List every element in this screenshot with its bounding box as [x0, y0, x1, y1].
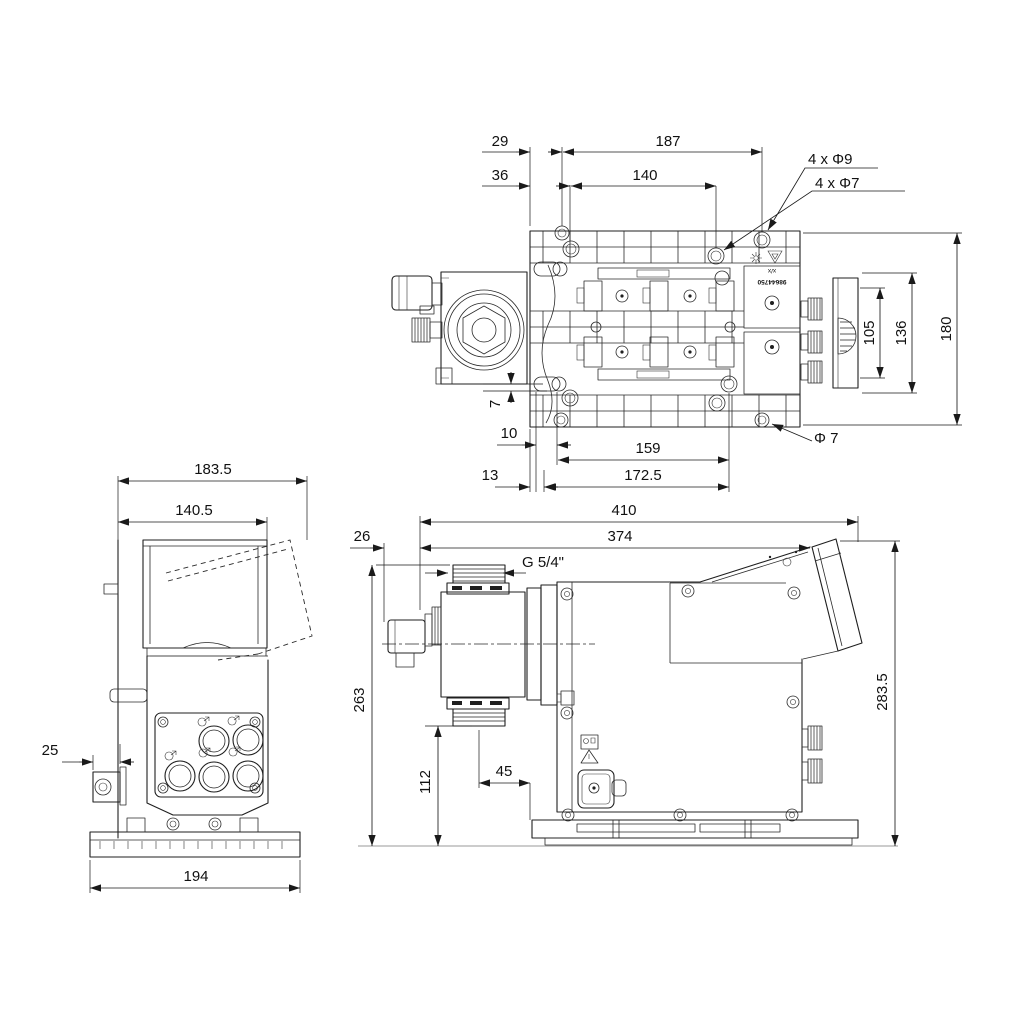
control-panel-front [143, 540, 267, 656]
dim-label-159: 159 [635, 440, 660, 457]
dim-label-410: 410 [611, 502, 636, 519]
warning-triangle-icon [768, 251, 782, 263]
dosing-pump-dimensional-drawing: x/x 98644750 [0, 0, 1024, 1024]
rear-glands-top [801, 298, 822, 383]
dim-label-13: 13 [482, 467, 499, 484]
pump-head-top [392, 272, 527, 384]
dim-label-112: 112 [417, 770, 434, 794]
control-panel-side [700, 539, 862, 659]
drain-plug [578, 770, 626, 808]
upper-slot-assembly [577, 268, 734, 311]
panel-open-position-outline [166, 540, 312, 660]
impeller-icon [750, 252, 762, 264]
part-number-label: x/x 98644750 [744, 266, 800, 394]
dim-label-180: 180 [938, 316, 955, 341]
dim-label-263: 263 [351, 687, 368, 712]
dim-label-140_5: 140.5 [175, 502, 213, 519]
thread-size-label: G 5/4" [522, 554, 564, 571]
dim-label-29: 29 [492, 133, 509, 150]
callout-phi7: Φ 7 [814, 430, 838, 447]
side-view: 410 26 374 G 5/4" [350, 502, 900, 846]
top-view: x/x 98644750 [392, 133, 962, 492]
dim-label-7: 7 [487, 400, 504, 408]
orientation-label: x/x [767, 267, 776, 274]
base-plate-side [532, 812, 858, 845]
bleed-knob-icon [412, 318, 442, 342]
wall-bracket [93, 767, 126, 805]
housing-screws [561, 585, 800, 821]
dim-label-172_5: 172.5 [624, 467, 662, 484]
dim-label-36: 36 [492, 167, 509, 184]
mounting-plate: x/x 98644750 [530, 226, 800, 427]
engineering-drawing-page: x/x 98644750 [0, 0, 1024, 1024]
lower-slot-assembly [577, 337, 734, 380]
dim-label-187: 187 [655, 133, 680, 150]
pump-body-front [104, 540, 268, 838]
rear-glands-side [802, 726, 822, 783]
warning-triangle-icon [581, 750, 598, 763]
control-panel-top-edge [833, 278, 858, 388]
dim-label-194: 194 [183, 868, 208, 885]
dim-label-136: 136 [893, 320, 910, 345]
cable-gland-icon [392, 276, 442, 314]
dim-label-25: 25 [42, 742, 59, 759]
dim-label-105: 105 [861, 320, 878, 345]
cable-gland-side [388, 607, 441, 667]
dim-label-183_5: 183.5 [194, 461, 232, 478]
dim-label-374: 374 [607, 528, 632, 545]
callout-4xphi9: 4 x Φ9 [808, 151, 853, 168]
cable-socket [165, 725, 263, 792]
dim-label-10: 10 [501, 425, 518, 442]
warning-label [581, 735, 598, 763]
terminal-plate [155, 713, 263, 797]
plate-contour [542, 265, 555, 423]
pump-body-side [557, 582, 802, 821]
dim-label-45: 45 [496, 763, 513, 780]
callout-4xphi7: 4 x Φ7 [815, 175, 860, 192]
dim-label-140: 140 [632, 167, 657, 184]
dim-label-283_5: 283.5 [874, 673, 891, 711]
front-view: 183.5 140.5 [42, 461, 312, 893]
base-plate-front [90, 818, 300, 857]
side-view-dimensions: 263 112 45 283.5 [351, 541, 900, 846]
part-number-text: 98644750 [757, 278, 786, 285]
top-view-dimensions: 29 187 36 140 4 x Φ9 4 x Φ7 105 136 180 [482, 133, 962, 492]
dim-label-26: 26 [354, 528, 371, 545]
discharge-connector [447, 698, 509, 726]
suction-connector [447, 565, 509, 594]
valve-assembly [444, 290, 524, 370]
